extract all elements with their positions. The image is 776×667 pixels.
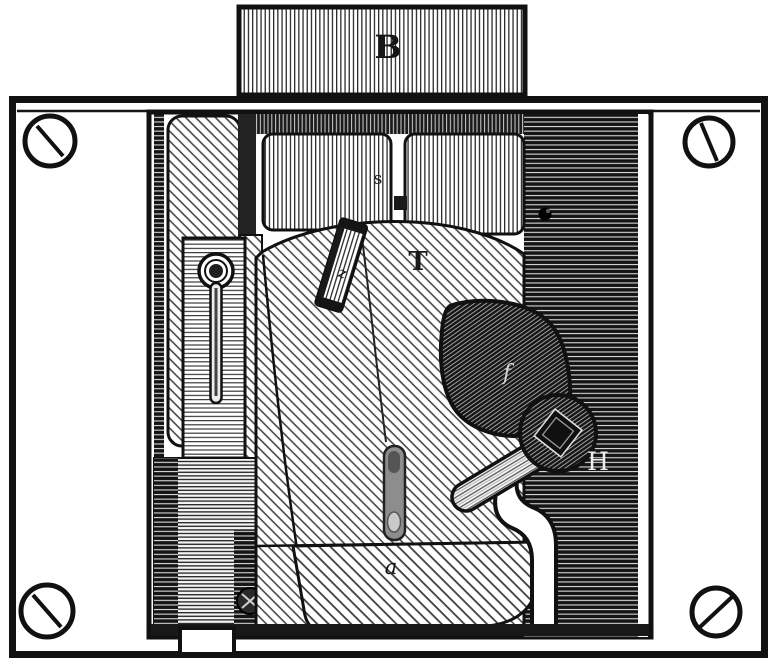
case-foot xyxy=(180,628,234,654)
corner-screw-top-left xyxy=(25,116,75,166)
stud-highlight xyxy=(388,512,401,532)
lower-right-dark-strip xyxy=(234,530,258,632)
corner-screw-top-right xyxy=(685,118,733,166)
label-T: T xyxy=(408,247,428,277)
stud-shadow xyxy=(388,451,400,473)
pivot-center xyxy=(209,264,223,278)
label-B: B xyxy=(374,28,401,66)
dark-field-gap xyxy=(638,114,648,637)
lower-left-dark-strip xyxy=(154,458,178,632)
spring-panel-left xyxy=(263,134,391,230)
guide-strip-dark xyxy=(238,114,256,238)
pin-dot-highlight xyxy=(546,209,550,213)
lock-mechanism-engraving: B xyxy=(0,0,776,667)
slide-slot-pin xyxy=(215,288,218,396)
corner-screw-bottom-right xyxy=(692,588,740,636)
bolt-head-block: B xyxy=(239,7,525,95)
bottom-plate-body xyxy=(293,542,538,631)
label-H: H xyxy=(587,447,609,476)
label-a: a xyxy=(385,555,398,579)
corner-screw-bottom-left xyxy=(21,585,73,637)
spring-box xyxy=(256,114,524,234)
engraving-figure: B xyxy=(0,0,776,667)
left-column xyxy=(154,114,263,634)
label-s: s xyxy=(374,169,383,189)
slot-foot xyxy=(394,196,407,210)
guard-stud xyxy=(384,446,405,540)
spring-panel-right xyxy=(405,134,524,234)
spring-box-top-band xyxy=(256,114,524,134)
